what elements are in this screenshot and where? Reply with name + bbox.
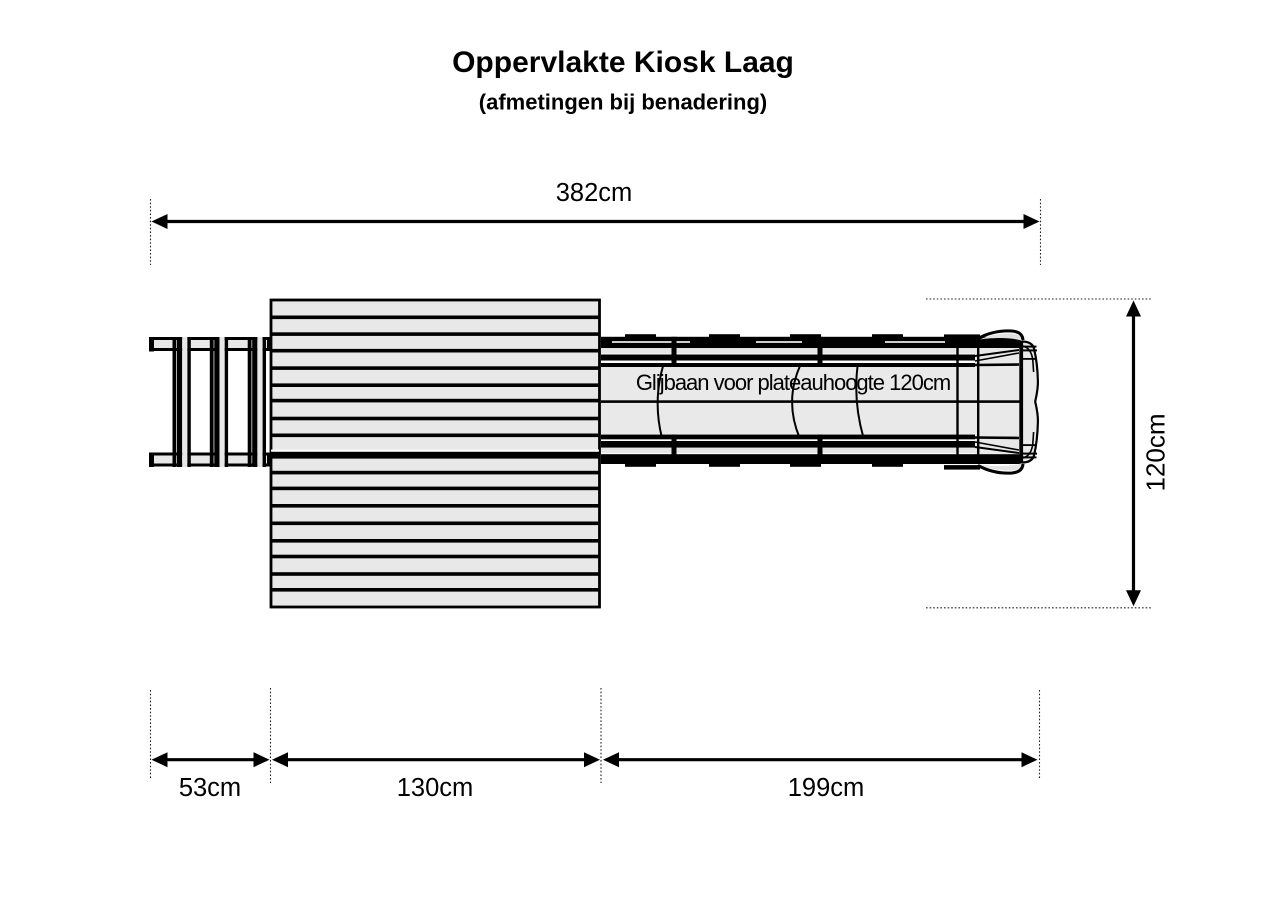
svg-text:199cm: 199cm: [788, 774, 865, 802]
svg-text:53cm: 53cm: [179, 774, 241, 802]
svg-text:Oppervlakte Kiosk Laag: Oppervlakte Kiosk Laag: [452, 46, 794, 79]
svg-text:Glijbaan voor plateauhoogte 12: Glijbaan voor plateauhoogte 120cm: [636, 370, 950, 395]
svg-text:382cm: 382cm: [556, 179, 633, 207]
svg-text:120cm: 120cm: [1141, 413, 1171, 491]
svg-text:(afmetingen bij benadering): (afmetingen bij benadering): [479, 90, 767, 115]
svg-text:130cm: 130cm: [397, 774, 474, 802]
